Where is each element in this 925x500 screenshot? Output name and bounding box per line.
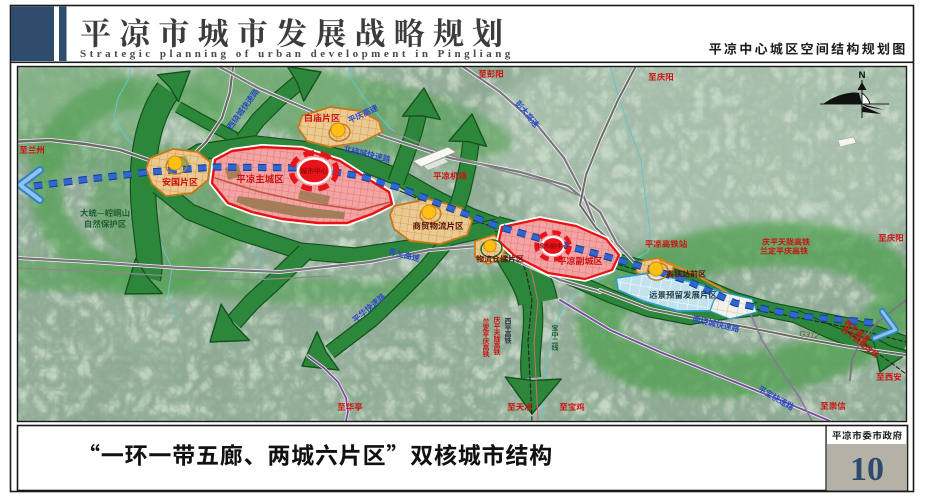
svg-text:10: 10 (850, 451, 884, 488)
svg-text:Strategic planning of urban de: Strategic planning of urban development … (80, 48, 514, 60)
svg-text:N: N (859, 70, 866, 81)
